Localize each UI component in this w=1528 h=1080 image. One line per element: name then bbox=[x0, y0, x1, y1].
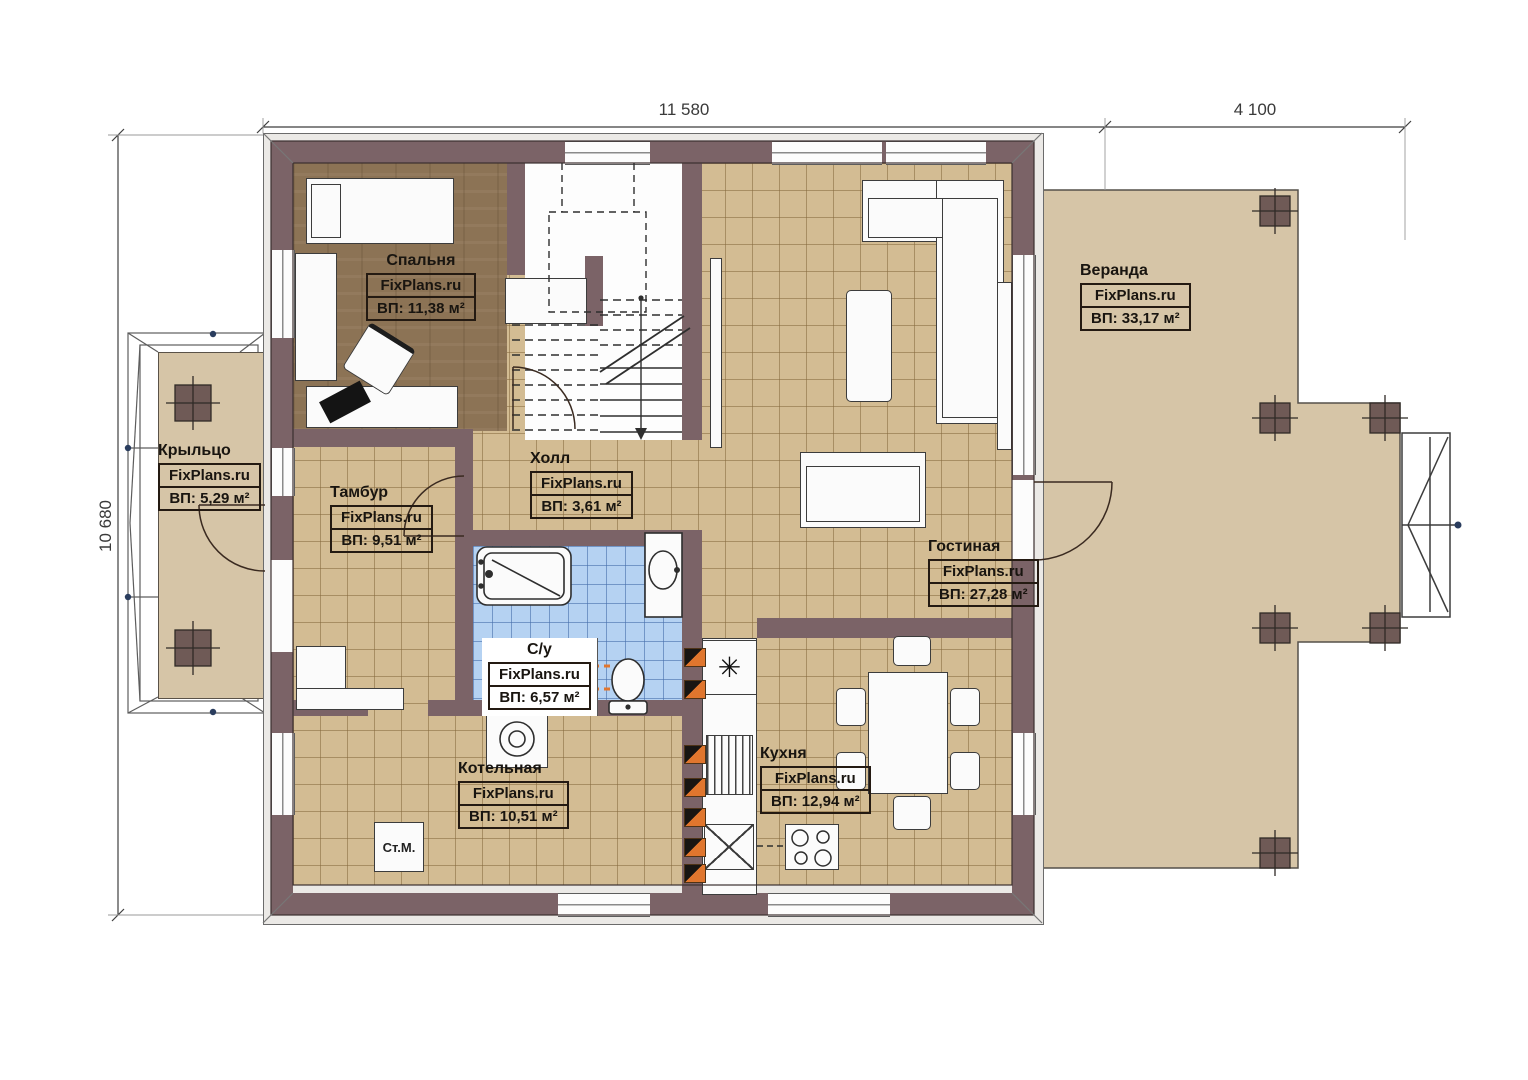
brand-link: FixPlans.ru bbox=[460, 783, 567, 804]
room-info-box: FixPlans.ru ВП: 9,51 м² bbox=[330, 505, 433, 553]
room-name: С/у bbox=[488, 641, 591, 659]
porch-posts bbox=[166, 376, 220, 675]
brand-link: FixPlans.ru bbox=[332, 507, 431, 528]
brand-link: FixPlans.ru bbox=[1082, 285, 1189, 306]
label-hall: Холл FixPlans.ru ВП: 3,61 м² bbox=[530, 450, 633, 519]
room-name: Тамбур bbox=[330, 484, 433, 502]
room-name: Холл bbox=[530, 450, 633, 468]
room-name: Крыльцо bbox=[158, 442, 261, 460]
brand-link: FixPlans.ru bbox=[532, 473, 631, 494]
room-area: ВП: 9,51 м² bbox=[332, 528, 431, 551]
room-info-box: FixPlans.ru ВП: 3,61 м² bbox=[530, 471, 633, 519]
room-name: Спальня bbox=[366, 252, 476, 270]
room-info-box: FixPlans.ru ВП: 10,51 м² bbox=[458, 781, 569, 829]
dim-width-main: 11 580 bbox=[584, 100, 784, 120]
room-name: Кухня bbox=[760, 745, 871, 763]
label-tambour: Тамбур FixPlans.ru ВП: 9,51 м² bbox=[330, 484, 433, 553]
label-kitchen: Кухня FixPlans.ru ВП: 12,94 м² bbox=[760, 745, 871, 814]
brand-link: FixPlans.ru bbox=[490, 664, 589, 685]
boiler-drum bbox=[500, 722, 534, 756]
brand-link: FixPlans.ru bbox=[762, 768, 869, 789]
room-info-box: FixPlans.ru ВП: 6,57 м² bbox=[488, 662, 591, 710]
label-boiler: Котельная FixPlans.ru ВП: 10,51 м² bbox=[458, 760, 569, 829]
brand-link: FixPlans.ru bbox=[160, 465, 259, 486]
room-area: ВП: 11,38 м² bbox=[368, 296, 474, 319]
dim-width-veranda: 4 100 bbox=[1155, 100, 1355, 120]
room-info-box: FixPlans.ru ВП: 5,29 м² bbox=[158, 463, 261, 511]
room-area: ВП: 27,28 м² bbox=[930, 582, 1037, 605]
bathtub bbox=[477, 547, 571, 605]
room-name: Гостиная bbox=[928, 538, 1039, 556]
room-info-box: FixPlans.ru ВП: 11,38 м² bbox=[366, 273, 476, 321]
room-info-box: FixPlans.ru ВП: 33,17 м² bbox=[1080, 283, 1191, 331]
room-info-box: FixPlans.ru ВП: 12,94 м² bbox=[760, 766, 871, 814]
stove-burners bbox=[757, 830, 831, 866]
dim-height-left: 10 680 bbox=[96, 446, 116, 606]
brand-link: FixPlans.ru bbox=[930, 561, 1037, 582]
room-area: ВП: 6,57 м² bbox=[490, 685, 589, 708]
brand-link: FixPlans.ru bbox=[368, 275, 474, 296]
label-bedroom: Спальня FixPlans.ru ВП: 11,38 м² bbox=[366, 252, 476, 321]
staircase bbox=[512, 163, 690, 440]
room-name: Веранда bbox=[1080, 262, 1191, 280]
room-area: ВП: 33,17 м² bbox=[1082, 306, 1189, 329]
label-porch: Крыльцо FixPlans.ru ВП: 5,29 м² bbox=[158, 442, 261, 511]
room-info-box: FixPlans.ru ВП: 27,28 м² bbox=[928, 559, 1039, 607]
label-veranda: Веранда FixPlans.ru ВП: 33,17 м² bbox=[1080, 262, 1191, 331]
plan-linework bbox=[0, 0, 1528, 1080]
veranda-posts bbox=[1252, 188, 1408, 876]
room-name: Котельная bbox=[458, 760, 569, 778]
floor-plan: ✳ Ст.М. bbox=[0, 0, 1528, 1080]
washbasin bbox=[645, 533, 682, 617]
room-area: ВП: 10,51 м² bbox=[460, 804, 567, 827]
label-wc: С/у FixPlans.ru ВП: 6,57 м² bbox=[482, 638, 598, 716]
label-living: Гостиная FixPlans.ru ВП: 27,28 м² bbox=[928, 538, 1039, 607]
room-area: ВП: 5,29 м² bbox=[160, 486, 259, 509]
toilet bbox=[609, 659, 647, 714]
room-area: ВП: 12,94 м² bbox=[762, 789, 869, 812]
room-area: ВП: 3,61 м² bbox=[532, 494, 631, 517]
